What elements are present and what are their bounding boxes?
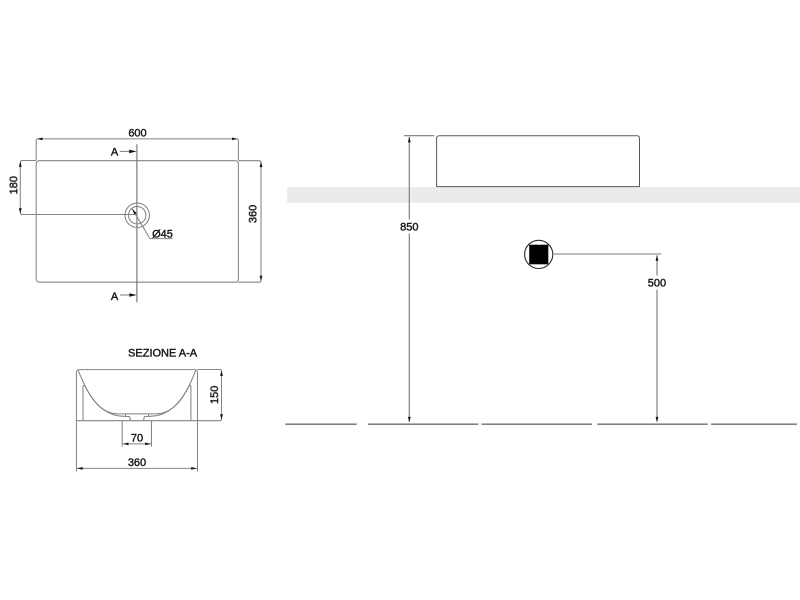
svg-text:600: 600 bbox=[128, 127, 146, 139]
svg-text:SEZIONE A-A: SEZIONE A-A bbox=[128, 347, 198, 359]
svg-text:A: A bbox=[111, 146, 119, 158]
svg-text:Ø45: Ø45 bbox=[152, 228, 173, 240]
svg-text:A: A bbox=[111, 291, 119, 303]
svg-text:70: 70 bbox=[131, 433, 143, 445]
svg-text:150: 150 bbox=[209, 386, 221, 404]
svg-text:360: 360 bbox=[128, 457, 146, 469]
svg-text:850: 850 bbox=[400, 222, 418, 234]
svg-text:500: 500 bbox=[648, 278, 666, 290]
svg-text:180: 180 bbox=[8, 176, 20, 194]
svg-text:360: 360 bbox=[247, 205, 259, 223]
